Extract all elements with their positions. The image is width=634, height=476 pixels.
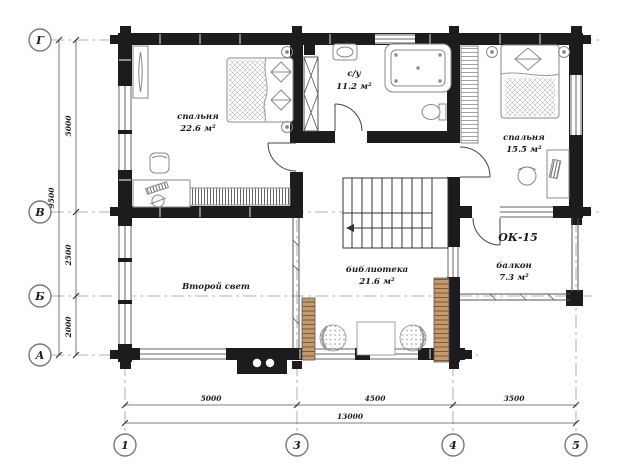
balcony-corner-post xyxy=(566,290,583,306)
wall-top xyxy=(118,33,583,45)
dim-bottom-4500: 4500 xyxy=(365,394,387,403)
svg-text:Б: Б xyxy=(34,290,45,303)
window-col4-balcony xyxy=(446,247,461,277)
floor-plan-drawing: 5000 2500 2000 9500 5000 4500 3500 13000… xyxy=(0,0,634,476)
window-left-5 xyxy=(117,304,133,344)
label-balcony-area: 7.3 м² xyxy=(499,273,529,283)
bookshelf-left xyxy=(302,298,315,360)
bathtub-jacuzzi xyxy=(385,44,451,92)
window-bottom-1 xyxy=(140,347,226,361)
vent-shaft xyxy=(304,45,318,131)
bed-bedroom2 xyxy=(487,45,570,118)
window-right-bedroom2 xyxy=(570,75,582,135)
door-bedroom1 xyxy=(268,143,304,172)
wall-bathroom-bottom xyxy=(290,131,460,143)
door-bathroom xyxy=(335,104,367,144)
svg-text:4: 4 xyxy=(449,439,457,452)
staircase xyxy=(343,178,448,248)
dim-bottom-5000: 5000 xyxy=(201,394,223,403)
axis-bubble-col-5: 5 xyxy=(565,434,587,456)
window-left-2 xyxy=(117,134,133,170)
void-railing xyxy=(293,218,299,348)
dim-left-2000: 2000 xyxy=(64,316,73,339)
svg-text:Г: Г xyxy=(35,34,45,47)
axis-bubble-row-v: В xyxy=(29,201,51,223)
wardrobe-bedroom2 xyxy=(461,46,478,143)
label-balcony-name: балкон xyxy=(496,260,532,271)
floor-plan-page: 5000 2500 2000 9500 5000 4500 3500 13000… xyxy=(0,0,634,476)
bookshelf-right xyxy=(434,278,449,362)
label-library-name: библиотека xyxy=(346,264,408,275)
desk-bedroom2 xyxy=(547,150,569,198)
toilet xyxy=(422,104,446,120)
window-left-4 xyxy=(117,262,133,300)
chair-bedroom2 xyxy=(518,167,536,185)
furniture-bedroom-2 xyxy=(461,45,570,198)
long-shelf-bedroom1 xyxy=(190,188,290,205)
svg-text:3: 3 xyxy=(293,439,301,452)
window-top-bathroom xyxy=(375,34,415,44)
armchair-library-left xyxy=(320,325,346,351)
label-window-unit-mark: ОК-15 xyxy=(498,231,537,244)
door-bedroom2 xyxy=(446,143,490,177)
label-bathroom-name: с/у xyxy=(347,69,361,79)
armchair-library-right xyxy=(400,325,426,351)
dim-bottom-3500: 3500 xyxy=(504,394,526,403)
axis-bubble-row-b: Б xyxy=(29,285,51,307)
desk-bedroom1 xyxy=(133,180,190,207)
sink xyxy=(333,44,357,60)
dim-left-2500: 2500 xyxy=(64,244,73,267)
window-left-1 xyxy=(117,86,133,130)
axis-bubble-row-g: Г xyxy=(29,29,51,51)
axis-bubble-col-3: 3 xyxy=(286,434,308,456)
label-void-space: Второй свет xyxy=(181,281,250,292)
window-left-3 xyxy=(117,226,133,258)
label-bedroom1-name: спальня xyxy=(177,112,219,122)
fireplace-block xyxy=(237,352,287,374)
label-bedroom1-area: 22.6 м² xyxy=(179,124,216,134)
axis-bubble-row-a: А xyxy=(29,344,51,366)
dim-left-5000: 5000 xyxy=(64,115,73,137)
window-ok15 xyxy=(500,205,553,219)
axis-bubble-col-4: 4 xyxy=(442,434,464,456)
dim-bottom-total: 13000 xyxy=(337,412,364,421)
svg-text:1: 1 xyxy=(121,439,129,452)
label-library-area: 21.6 м² xyxy=(358,277,395,287)
armchair-bedroom1 xyxy=(150,153,169,173)
axis-bubble-col-1: 1 xyxy=(114,434,136,456)
door-balcony xyxy=(472,205,500,245)
bed-bedroom1 xyxy=(227,47,293,133)
svg-text:5: 5 xyxy=(572,439,580,452)
wall-row-v-left xyxy=(118,206,303,218)
svg-text:А: А xyxy=(35,349,45,362)
label-bedroom2-area: 15.5 м² xyxy=(506,145,542,155)
label-bedroom2-name: спальня xyxy=(503,133,545,143)
svg-text:В: В xyxy=(34,206,44,219)
table-library xyxy=(357,322,395,355)
label-bathroom-area: 11.2 м² xyxy=(336,82,372,92)
wardrobe-bedroom1 xyxy=(133,46,148,98)
